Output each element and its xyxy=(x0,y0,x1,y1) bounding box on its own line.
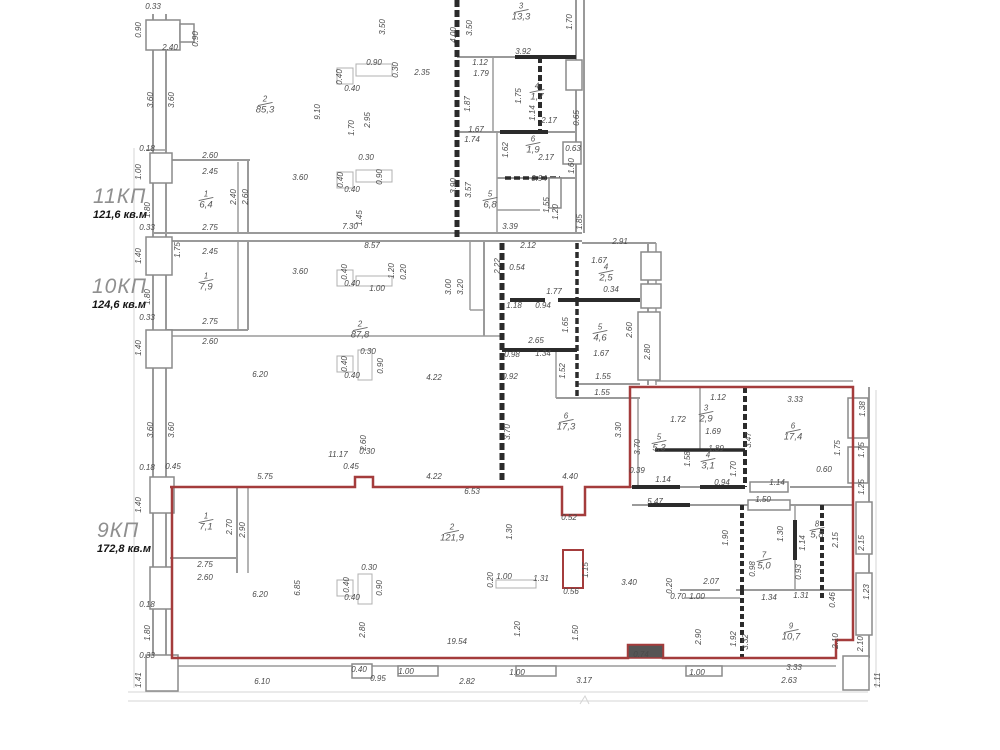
unit-name: 9КП xyxy=(97,520,151,541)
dimension-label: 2.60 xyxy=(626,322,634,338)
dimension-label: 1.75 xyxy=(174,242,182,258)
room-area: 3,1 xyxy=(701,462,716,471)
dimension-label: 3.20 xyxy=(457,279,465,295)
dimension-label: 0.94 xyxy=(714,479,730,487)
dimension-label: 2.70 xyxy=(226,519,234,535)
dimension-label: 1.75 xyxy=(834,440,842,456)
room-area: 6,4 xyxy=(199,201,214,210)
room-area: 85,3 xyxy=(256,106,275,115)
dimension-label: 0.52 xyxy=(561,514,577,522)
dimension-label: 6.20 xyxy=(252,371,268,379)
dimension-label: 1.00 xyxy=(369,285,385,293)
dimension-label: 0.40 xyxy=(351,666,367,674)
dimension-label: 1.55 xyxy=(543,197,551,213)
unit-name: 10КП xyxy=(92,276,147,297)
dimension-label: 5.47 xyxy=(647,498,663,506)
dimension-label: 3.33 xyxy=(786,664,802,672)
room-label: 56,8 xyxy=(483,191,498,210)
dimension-label: 1.70 xyxy=(348,120,356,136)
dimension-label: 3.00 xyxy=(445,279,453,295)
dimension-label: 1.40 xyxy=(135,248,143,264)
dimension-label: 0.30 xyxy=(358,154,374,162)
dimension-label: 1.20 xyxy=(514,621,522,637)
dimension-label: 0.40 xyxy=(344,186,360,194)
dimension-label: 1.58 xyxy=(684,451,692,467)
dimension-label: 0.94 xyxy=(531,175,547,183)
dimension-label: 2.65 xyxy=(528,337,544,345)
dimension-label: 1.00 xyxy=(496,573,512,581)
dimension-label: 0.45 xyxy=(165,463,181,471)
dimension-label: 0.34 xyxy=(603,286,619,294)
dimension-label: 1.12 xyxy=(710,394,726,402)
dimension-label: 4.40 xyxy=(562,473,578,481)
dimension-label: 1.20 xyxy=(552,204,560,220)
dimension-label: 1.15 xyxy=(582,562,590,578)
dimension-label: 2.91 xyxy=(612,238,628,246)
dimension-label: 0.33 xyxy=(145,3,161,11)
dimension-label: 1.00 xyxy=(135,164,143,180)
dimension-label: 2.60 xyxy=(202,338,218,346)
room-area: 7,1 xyxy=(199,523,214,532)
unit-name: 11КП xyxy=(93,186,147,207)
dimension-label: 6.10 xyxy=(254,678,270,686)
dimension-label: 19.54 xyxy=(447,638,467,646)
plan-labels-layer: 0.330.900.902.403.603.600.181.002.602.45… xyxy=(0,0,1000,750)
dimension-label: 3.90 xyxy=(450,178,458,194)
dimension-label: 1.60 xyxy=(568,158,576,174)
dimension-label: 4.22 xyxy=(426,374,442,382)
dimension-label: 0.98 xyxy=(504,351,520,359)
room-label: 42,5 xyxy=(599,264,614,283)
dimension-label: 0.90 xyxy=(376,169,384,185)
dimension-label: 0.40 xyxy=(344,280,360,288)
dimension-label: 1.55 xyxy=(595,373,611,381)
dimension-label: 0.45 xyxy=(343,463,359,471)
room-area: 5,3 xyxy=(652,444,667,453)
dimension-label: 1.38 xyxy=(859,401,867,417)
dimension-label: 2.75 xyxy=(202,224,218,232)
dimension-label: 0.90 xyxy=(192,31,200,47)
dimension-label: 2.60 xyxy=(242,189,250,205)
dimension-label: 1.75 xyxy=(858,442,866,458)
dimension-label: 1.67 xyxy=(593,350,609,358)
dimension-label: 1.30 xyxy=(506,524,514,540)
dimension-label: 2.10 xyxy=(857,636,865,652)
dimension-label: 2.40 xyxy=(162,44,178,52)
dimension-label: 0.20 xyxy=(400,264,408,280)
dimension-label: 1.14 xyxy=(769,479,785,487)
dimension-label: 3.30 xyxy=(615,422,623,438)
dimension-label: 2.95 xyxy=(364,112,372,128)
dimension-label: 1.85 xyxy=(576,214,584,230)
dimension-label: 3.60 xyxy=(168,92,176,108)
dimension-label: 0.18 xyxy=(139,601,155,609)
dimension-label: 1.31 xyxy=(533,575,549,583)
dimension-label: 1.52 xyxy=(559,363,567,379)
room-area: 2,5 xyxy=(599,274,614,283)
room-area: 7,9 xyxy=(199,283,214,292)
dimension-label: 1.92 xyxy=(730,631,738,647)
dimension-label: 3.33 xyxy=(787,396,803,404)
dimension-label: 1.23 xyxy=(863,584,871,600)
dimension-label: 0.30 xyxy=(392,62,400,78)
room-area: 17,4 xyxy=(784,433,803,442)
dimension-label: 6.85 xyxy=(294,580,302,596)
dimension-label: 1.30 xyxy=(777,526,785,542)
dimension-label: 2.45 xyxy=(202,168,218,176)
room-area: 121,9 xyxy=(440,534,464,543)
dimension-label: 1.12 xyxy=(472,59,488,67)
room-area: 10,7 xyxy=(782,633,801,642)
dimension-label: 2.15 xyxy=(858,535,866,551)
dimension-label: 0.90 xyxy=(377,358,385,374)
unit-area: 121,6 кв.м xyxy=(93,209,147,221)
dimension-label: 0.33 xyxy=(139,314,155,322)
dimension-label: 3.47 xyxy=(745,432,753,448)
dimension-label: 1.25 xyxy=(858,479,866,495)
dimension-label: 3.60 xyxy=(168,422,176,438)
dimension-label: 2.82 xyxy=(459,678,475,686)
room-label: 313,3 xyxy=(512,3,531,22)
dimension-label: 1.87 xyxy=(464,96,472,112)
dimension-label: 1.31 xyxy=(793,592,809,600)
dimension-label: 2.60 xyxy=(202,152,218,160)
room-area: 17,3 xyxy=(557,423,576,432)
dimension-label: 3.50 xyxy=(466,20,474,36)
dimension-label: 0.33 xyxy=(139,652,155,660)
dimension-label: 0.54 xyxy=(509,264,525,272)
dimension-label: 0.65 xyxy=(573,110,581,126)
dimension-label: 1.00 xyxy=(689,593,705,601)
dimension-label: 2.60 xyxy=(197,574,213,582)
unit-label: 9КП172,8 кв.м xyxy=(97,520,151,555)
dimension-label: 2.22 xyxy=(494,258,502,274)
dimension-label: 8.57 xyxy=(364,242,380,250)
dimension-label: 0.46 xyxy=(829,592,837,608)
dimension-label: 0.40 xyxy=(344,85,360,93)
dimension-label: 4.00 xyxy=(450,27,458,43)
dimension-label: 2.75 xyxy=(202,318,218,326)
room-label: 910,7 xyxy=(782,623,801,642)
dimension-label: 3.32 xyxy=(742,634,750,650)
unit-area: 172,8 кв.м xyxy=(97,543,151,555)
dimension-label: 2.17 xyxy=(541,117,557,125)
dimension-label: 0.30 xyxy=(359,448,375,456)
dimension-label: 1.67 xyxy=(468,126,484,134)
dimension-label: 0.90 xyxy=(135,22,143,38)
room-label: 17,9 xyxy=(199,273,214,292)
dimension-label: 3.60 xyxy=(147,422,155,438)
dimension-label: 0.40 xyxy=(336,69,344,85)
room-area: 87,8 xyxy=(351,331,370,340)
dimension-label: 3.50 xyxy=(379,19,387,35)
dimension-label: 3.92 xyxy=(515,48,531,56)
dimension-label: 0.40 xyxy=(344,372,360,380)
dimension-label: 2.80 xyxy=(644,344,652,360)
room-area: 1,7 xyxy=(530,93,545,102)
dimension-label: 3.40 xyxy=(621,579,637,587)
dimension-label: 2.10 xyxy=(832,633,840,649)
dimension-label: 0.60 xyxy=(816,466,832,474)
room-label: 617,4 xyxy=(784,423,803,442)
dimension-label: 1.14 xyxy=(655,476,671,484)
room-label: 16,4 xyxy=(199,191,214,210)
dimension-label: 1.74 xyxy=(464,136,480,144)
dimension-label: 0.20 xyxy=(487,572,495,588)
room-label: 55,3 xyxy=(652,434,667,453)
dimension-label: 3.17 xyxy=(576,677,592,685)
room-area: 2,9 xyxy=(699,415,714,424)
room-label: 2121,9 xyxy=(440,524,464,543)
dimension-label: 1.18 xyxy=(506,302,522,310)
dimension-label: 3.39 xyxy=(502,223,518,231)
dimension-label: 1.55 xyxy=(594,389,610,397)
dimension-label: 1.70 xyxy=(566,14,574,30)
dimension-label: 1.72 xyxy=(670,416,686,424)
dimension-label: 11.17 xyxy=(328,451,347,459)
room-label: 85,8 xyxy=(810,521,825,540)
dimension-label: 0.94 xyxy=(535,302,551,310)
dimension-label: 2.90 xyxy=(695,629,703,645)
dimension-label: 1.45 xyxy=(356,210,364,226)
dimension-label: 2.75 xyxy=(197,561,213,569)
dimension-label: 3.57 xyxy=(465,182,473,198)
room-label: 54,6 xyxy=(593,324,608,343)
dimension-label: 0.93 xyxy=(795,564,803,580)
dimension-label: 2.15 xyxy=(832,532,840,548)
room-area: 4,6 xyxy=(593,334,608,343)
dimension-label: 0.39 xyxy=(629,467,645,475)
dimension-label: 1.77 xyxy=(546,288,562,296)
dimension-label: 0.90 xyxy=(376,580,384,596)
dimension-label: 1.14 xyxy=(799,535,807,551)
dimension-label: 0.92 xyxy=(502,373,518,381)
dimension-label: 1.69 xyxy=(705,428,721,436)
dimension-label: 2.90 xyxy=(239,522,247,538)
dimension-label: 0.74 xyxy=(633,651,649,659)
dimension-label: 1.11 xyxy=(874,673,882,688)
dimension-label: 2.17 xyxy=(538,154,554,162)
dimension-label: 3.60 xyxy=(292,174,308,182)
dimension-label: 0.40 xyxy=(344,594,360,602)
dimension-label: 1.75 xyxy=(515,88,523,104)
dimension-label: 0.95 xyxy=(370,675,386,683)
unit-area: 124,6 кв.м xyxy=(92,299,147,311)
room-label: 287,8 xyxy=(351,321,370,340)
room-label: 41,7 xyxy=(530,83,545,102)
room-area: 6,8 xyxy=(483,201,498,210)
dimension-label: 1.41 xyxy=(135,672,143,688)
dimension-label: 3.60 xyxy=(292,268,308,276)
dimension-label: 1.50 xyxy=(572,625,580,641)
dimension-label: 1.14 xyxy=(529,105,537,121)
room-label: 43,1 xyxy=(701,452,716,471)
dimension-label: 0.40 xyxy=(341,264,349,280)
dimension-label: 0.90 xyxy=(366,59,382,67)
floor-plan-page: 0.330.900.902.403.603.600.181.002.602.45… xyxy=(0,0,1000,750)
dimension-label: 0.70 xyxy=(670,593,686,601)
dimension-label: 2.40 xyxy=(230,189,238,205)
dimension-label: 1.65 xyxy=(562,317,570,333)
dimension-label: 0.33 xyxy=(139,224,155,232)
room-label: 285,3 xyxy=(256,96,275,115)
dimension-label: 3.70 xyxy=(504,424,512,440)
dimension-label: 1.70 xyxy=(730,461,738,477)
dimension-label: 1.34 xyxy=(761,594,777,602)
dimension-label: 0.18 xyxy=(139,145,155,153)
room-area: 5,0 xyxy=(757,562,772,571)
dimension-label: 1.20 xyxy=(388,263,396,279)
room-label: 17,1 xyxy=(199,513,214,532)
room-number: 2 xyxy=(440,524,464,531)
dimension-label: 2.35 xyxy=(414,69,430,77)
dimension-label: 6.53 xyxy=(464,488,480,496)
dimension-label: 0.30 xyxy=(361,564,377,572)
unit-label: 10КП124,6 кв.м xyxy=(92,276,147,311)
dimension-label: 1.00 xyxy=(509,669,525,677)
dimension-label: 1.34 xyxy=(535,350,551,358)
room-label: 32,9 xyxy=(699,405,714,424)
dimension-label: 1.80 xyxy=(144,625,152,641)
dimension-label: 1.40 xyxy=(135,340,143,356)
dimension-label: 3.70 xyxy=(634,439,642,455)
dimension-label: 0.56 xyxy=(563,588,579,596)
dimension-label: 1.90 xyxy=(722,530,730,546)
dimension-label: 0.30 xyxy=(360,348,376,356)
dimension-label: 2.63 xyxy=(781,677,797,685)
dimension-label: 0.63 xyxy=(565,145,581,153)
dimension-label: 5.75 xyxy=(257,473,273,481)
dimension-label: 1.00 xyxy=(689,669,705,677)
room-area: 1,9 xyxy=(526,146,541,155)
dimension-label: 2.07 xyxy=(703,578,719,586)
dimension-label: 1.00 xyxy=(398,668,414,676)
dimension-label: 0.40 xyxy=(341,356,349,372)
room-label: 75,0 xyxy=(757,552,772,571)
room-label: 617,3 xyxy=(557,413,576,432)
dimension-label: 1.50 xyxy=(755,496,771,504)
dimension-label: 9.10 xyxy=(314,104,322,120)
dimension-label: 2.80 xyxy=(359,622,367,638)
dimension-label: 2.12 xyxy=(520,242,536,250)
dimension-label: 0.40 xyxy=(343,577,351,593)
room-area: 5,8 xyxy=(810,531,825,540)
dimension-label: 1.79 xyxy=(473,70,489,78)
room-area: 13,3 xyxy=(512,13,531,22)
room-label: 61,9 xyxy=(526,136,541,155)
dimension-label: 3.60 xyxy=(147,92,155,108)
dimension-label: 6.20 xyxy=(252,591,268,599)
dimension-label: 2.45 xyxy=(202,248,218,256)
dimension-label: 1.62 xyxy=(502,142,510,158)
unit-label: 11КП121,6 кв.м xyxy=(93,186,147,221)
dimension-label: 1.40 xyxy=(135,497,143,513)
dimension-label: 0.18 xyxy=(139,464,155,472)
dimension-label: 4.22 xyxy=(426,473,442,481)
